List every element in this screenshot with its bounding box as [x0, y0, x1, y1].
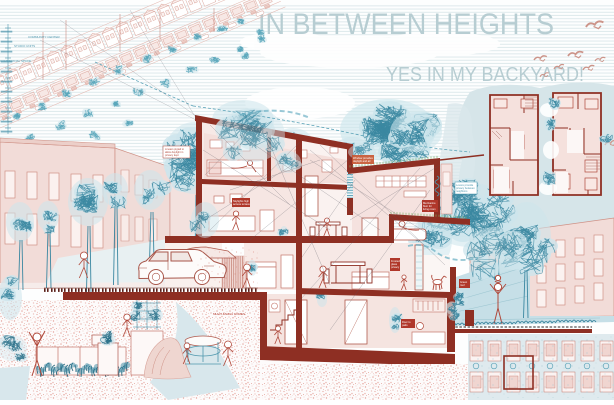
- svg-text:daylight and air: daylight and air: [353, 159, 371, 163]
- svg-text:IN BETWEEN HEIGHTS: IN BETWEEN HEIGHTS: [258, 8, 554, 41]
- svg-text:COMMUNITY CENTER: COMMUNITY CENTER: [28, 35, 60, 39]
- svg-text:privacy kept: privacy kept: [165, 153, 179, 157]
- svg-text:STUDIO UNITS: STUDIO UNITS: [14, 44, 35, 48]
- svg-text:patio: patio: [402, 323, 408, 327]
- svg-text:neighbors: neighbors: [456, 189, 468, 193]
- svg-text:privacy: privacy: [391, 265, 400, 269]
- svg-text:living room: living room: [423, 207, 436, 211]
- svg-text:COMMERCIAL SPACE: COMMERCIAL SPACE: [0, 59, 31, 63]
- svg-text:MULTI-FAMILY HOMES: MULTI-FAMILY HOMES: [213, 312, 245, 316]
- svg-text:access terrace: access terrace: [233, 202, 250, 206]
- svg-text:roof: roof: [460, 283, 465, 287]
